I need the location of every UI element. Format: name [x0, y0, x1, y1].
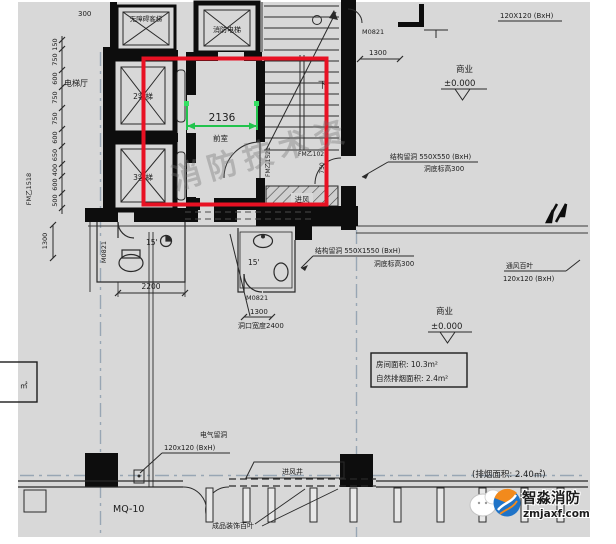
svg-text:120x120 (BxH): 120x120 (BxH) [503, 275, 555, 283]
door-m0821-left-label: M0821 [100, 241, 108, 263]
svg-text:±0.000: ±0.000 [431, 322, 462, 332]
louver-note: 成品装饰百叶 [212, 521, 254, 530]
svg-text:1300: 1300 [369, 49, 387, 57]
air-inlet-shaft-label: 进风井 [282, 467, 303, 476]
chain-dim: 650 [51, 149, 59, 161]
svg-text:120X120 (BxH): 120X120 (BxH) [500, 12, 554, 20]
svg-text:商业: 商业 [436, 306, 453, 317]
logo-brand-text[interactable]: 智淼消防 [522, 489, 580, 507]
fire-elevator-label: 消防电梯 [213, 25, 241, 34]
svg-text:2200: 2200 [141, 282, 160, 291]
elevator-hall-label: 电梯厅 [64, 78, 88, 88]
svg-text:1300: 1300 [41, 233, 49, 250]
opening-width-note: 洞口宽度2400 [238, 321, 284, 330]
logo-site-text[interactable]: zmjaxf.com [523, 508, 590, 520]
chain-dim: 600 [51, 72, 59, 84]
svg-text:洞底标高300: 洞底标高300 [424, 164, 464, 173]
chain-dim: 750 [51, 91, 59, 103]
svg-text:±0.000: ±0.000 [444, 79, 475, 89]
door-fm1518-label: FM乙1518 [25, 173, 33, 205]
chain-dim: 750 [51, 53, 59, 65]
vestibule-label: 前室 [213, 133, 228, 143]
door-m0821-mid-label: M0821 [246, 294, 268, 302]
chain-dim: 600 [51, 131, 59, 143]
svg-text:自然排烟面积: 2.4m²: 自然排烟面积: 2.4m² [376, 373, 448, 383]
smoke-area-note: (排烟面积: 2.40㎡) [472, 469, 546, 480]
accessible-elevator-label: 无障碍客梯 [130, 14, 163, 23]
door-m0821-top-label: M0821 [362, 28, 384, 36]
svg-text:1300: 1300 [250, 308, 268, 316]
svg-text:结构留洞 550X1550 (BxH): 结构留洞 550X1550 (BxH) [315, 246, 401, 255]
floor-plan-screenshot: 下 无障碍客梯 2客梯 3客梯 消防电梯 进风 [0, 0, 616, 544]
drain-right-label: 15' [248, 258, 260, 267]
chain-dim: 400 [51, 164, 59, 176]
note-top-hole: 120X120 (BxH) [498, 12, 562, 21]
svg-text:洞底标高300: 洞底标高300 [374, 259, 414, 268]
svg-text:通风百叶: 通风百叶 [506, 261, 533, 270]
drain-left-label: 15' [146, 238, 158, 247]
chain-dim: 750 [51, 112, 59, 124]
floor-plan-drawing: 下 无障碍客梯 2客梯 3客梯 消防电梯 进风 [0, 0, 616, 544]
svg-text:结构留洞 550X550 (BxH): 结构留洞 550X550 (BxH) [390, 152, 472, 161]
svg-text:120x120 (BxH): 120x120 (BxH) [164, 444, 216, 452]
svg-text:电气留洞: 电气留洞 [200, 430, 227, 439]
mq10-label: MQ-10 [113, 504, 144, 515]
chain-dim: 600 [51, 178, 59, 190]
green-dim-value: 2136 [209, 112, 236, 124]
svg-text:商业: 商业 [456, 64, 473, 75]
chain-dim: 500 [51, 194, 59, 206]
svg-text:㎡: ㎡ [20, 381, 28, 390]
zhimiao-logo[interactable]: 智淼消防 zmjaxf.com [470, 489, 590, 520]
dim-300: 300 [78, 10, 91, 18]
svg-text:房间面积: 10.3m²: 房间面积: 10.3m² [376, 359, 438, 369]
chain-dim: 150 [51, 38, 59, 50]
